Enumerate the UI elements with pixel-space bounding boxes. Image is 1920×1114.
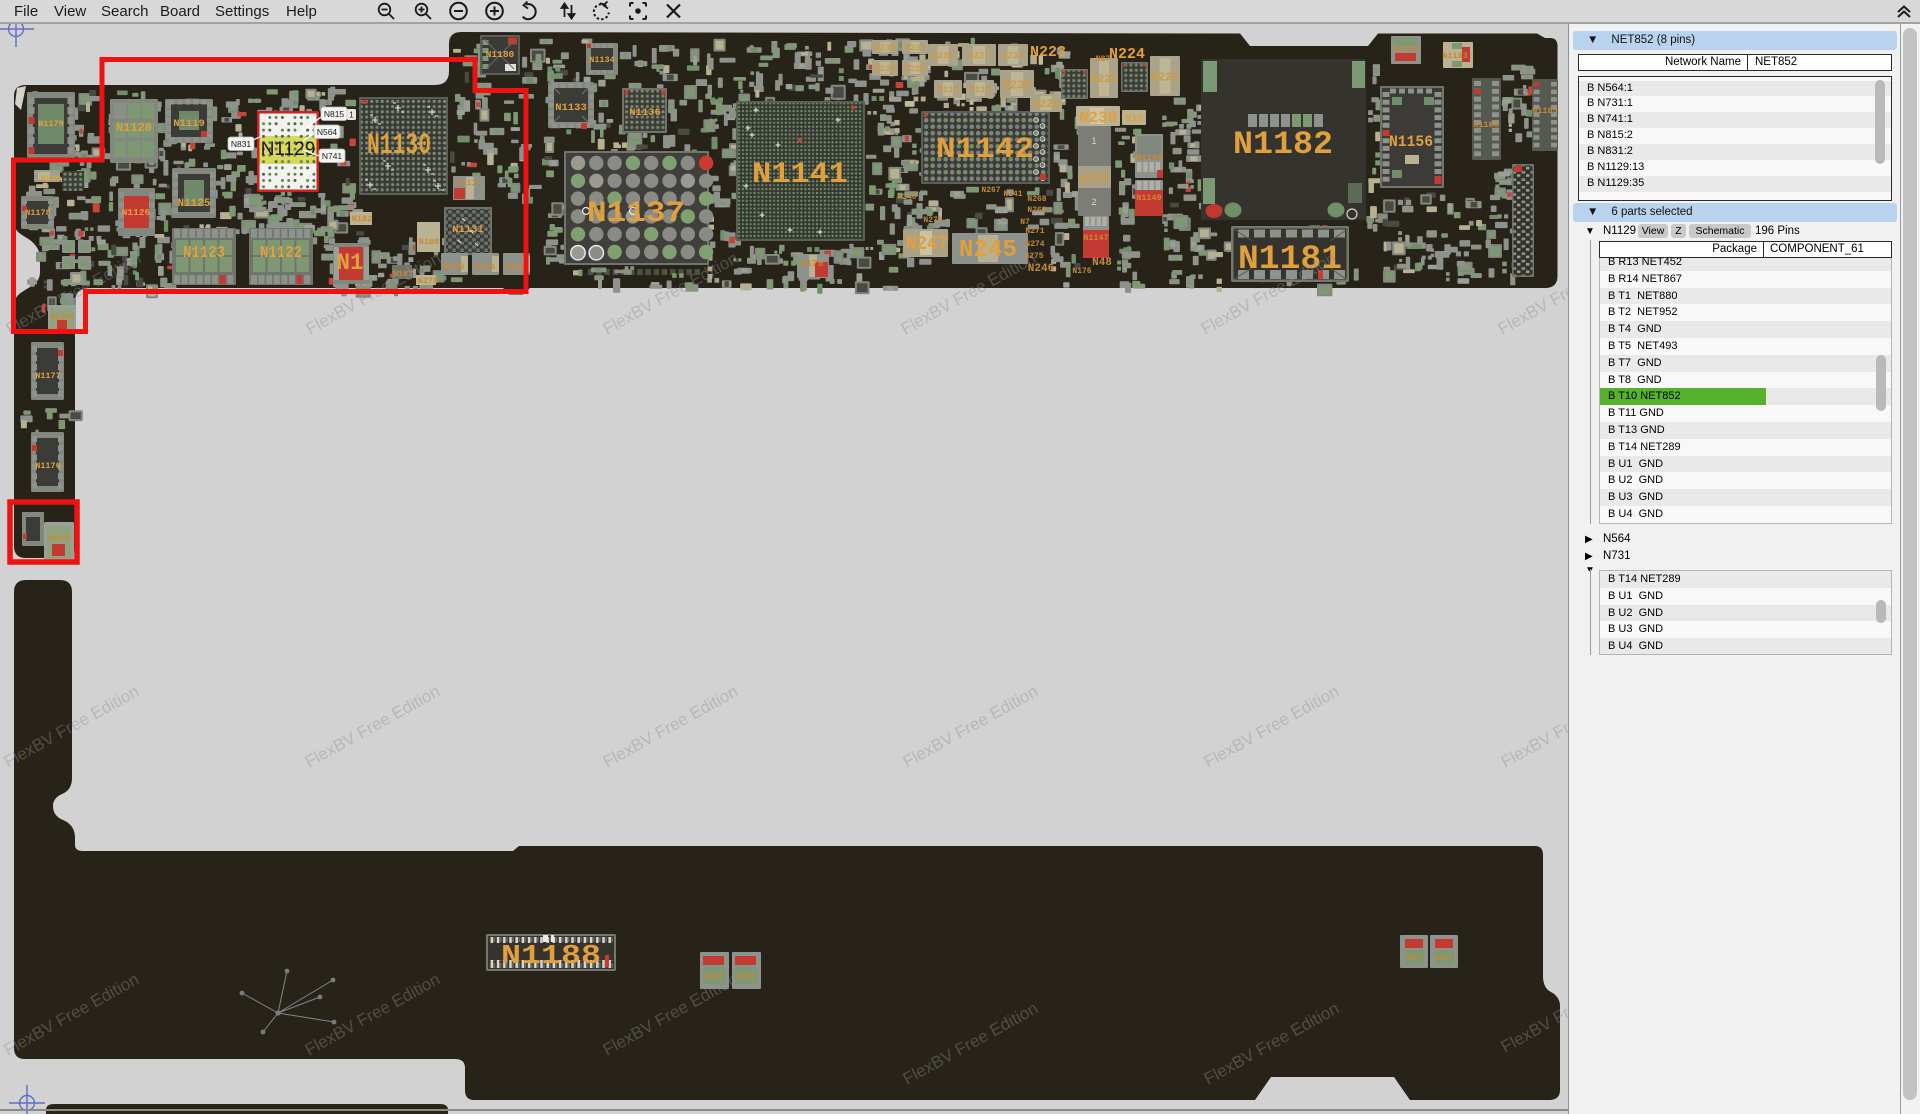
- svg-text:N1177: N1177: [35, 371, 61, 381]
- svg-text:N1149: N1149: [1136, 193, 1162, 203]
- svg-text:N1131: N1131: [452, 224, 484, 236]
- svg-text:N268: N268: [1027, 195, 1046, 204]
- svg-text:N87: N87: [1096, 55, 1111, 64]
- svg-text:N7: N7: [1020, 218, 1030, 227]
- svg-text:N224: N224: [1109, 46, 1145, 63]
- svg-text:N1119: N1119: [173, 118, 205, 130]
- svg-text:N1183: N1183: [1442, 51, 1468, 61]
- svg-text:N231: N231: [970, 85, 990, 95]
- svg-text:N1120: N1120: [116, 121, 152, 135]
- svg-text:N1142: N1142: [936, 133, 1034, 167]
- svg-text:N188: N188: [419, 237, 439, 247]
- svg-text:N1125: N1125: [177, 198, 210, 210]
- svg-text:N117: N117: [1436, 955, 1453, 963]
- svg-text:N229: N229: [875, 64, 895, 74]
- svg-text:N270: N270: [923, 216, 942, 225]
- svg-text:N227: N227: [968, 51, 990, 61]
- svg-text:1: 1: [1091, 136, 1096, 146]
- svg-text:N230: N230: [1003, 78, 1032, 92]
- svg-text:N1147: N1147: [1083, 233, 1109, 243]
- svg-text:N274: N274: [1025, 240, 1044, 249]
- svg-text:N238: N238: [1079, 109, 1117, 127]
- svg-text:N1156: N1156: [1389, 133, 1433, 151]
- svg-text:N1180: N1180: [486, 49, 515, 60]
- svg-text:N117: N117: [1406, 955, 1423, 963]
- svg-text:N118: N118: [738, 973, 755, 981]
- svg-text:N1123: N1123: [183, 244, 225, 263]
- svg-text:N228: N228: [905, 64, 925, 74]
- svg-text:N1133: N1133: [555, 102, 587, 114]
- svg-text:N176: N176: [1072, 267, 1091, 276]
- svg-text:N741: N741: [322, 151, 343, 161]
- svg-text:N1178: N1178: [25, 208, 51, 218]
- svg-text:N235: N235: [875, 43, 895, 53]
- svg-text:N1182: N1182: [1233, 126, 1333, 163]
- svg-text:N239: N239: [1080, 172, 1109, 186]
- svg-text:N182: N182: [352, 214, 372, 224]
- svg-text:N48: N48: [1092, 257, 1112, 269]
- svg-text:N232: N232: [938, 85, 958, 95]
- svg-text:N1136: N1136: [629, 107, 661, 119]
- svg-text:N1134: N1134: [589, 55, 615, 65]
- svg-text:N295: N295: [444, 262, 464, 272]
- svg-text:N1: N1: [337, 250, 364, 276]
- svg-text:N564: N564: [317, 127, 338, 137]
- svg-text:N1185: N1185: [1532, 106, 1558, 116]
- svg-text:N247: N247: [906, 233, 948, 255]
- svg-text:N240: N240: [897, 193, 916, 202]
- svg-text:N1126: N1126: [122, 207, 151, 218]
- svg-text:1: 1: [349, 111, 354, 120]
- svg-text:N831: N831: [231, 139, 252, 149]
- svg-text:N1141: N1141: [752, 158, 848, 192]
- svg-text:N226: N226: [932, 51, 954, 61]
- svg-text:N222: N222: [1091, 74, 1117, 86]
- svg-text:N1148: N1148: [1136, 153, 1162, 163]
- svg-text:2: 2: [1091, 197, 1096, 207]
- svg-text:N269: N269: [1027, 206, 1046, 215]
- svg-text:N1122: N1122: [260, 244, 302, 263]
- svg-text:N271: N271: [1025, 227, 1044, 236]
- svg-text:N1130: N1130: [367, 129, 431, 163]
- svg-text:N237: N237: [1002, 51, 1024, 61]
- svg-text:N1186: N1186: [1473, 120, 1499, 130]
- svg-text:N241: N241: [1003, 190, 1022, 199]
- svg-text:N1137: N1137: [587, 197, 685, 231]
- svg-text:N249: N249: [41, 174, 61, 184]
- svg-text:N1117: N1117: [456, 178, 482, 188]
- svg-text:N10: N10: [1125, 114, 1143, 125]
- svg-text:N225: N225: [1033, 99, 1060, 111]
- svg-text:N1179: N1179: [38, 119, 64, 129]
- svg-text:N189: N189: [506, 262, 526, 272]
- svg-text:N1188: N1188: [501, 942, 601, 972]
- svg-text:N223: N223: [1030, 44, 1066, 61]
- svg-text:N1129: N1129: [261, 139, 316, 160]
- svg-text:N296: N296: [475, 262, 495, 272]
- svg-text:N267: N267: [981, 186, 1000, 195]
- svg-text:N1158: N1158: [48, 535, 71, 543]
- svg-text:N221: N221: [1151, 70, 1180, 84]
- svg-text:N175: N175: [801, 258, 824, 269]
- svg-text:N237: N237: [905, 43, 925, 53]
- svg-text:N1176: N1176: [35, 461, 61, 471]
- svg-text:N1184: N1184: [1393, 44, 1419, 54]
- svg-text:N815: N815: [324, 109, 345, 119]
